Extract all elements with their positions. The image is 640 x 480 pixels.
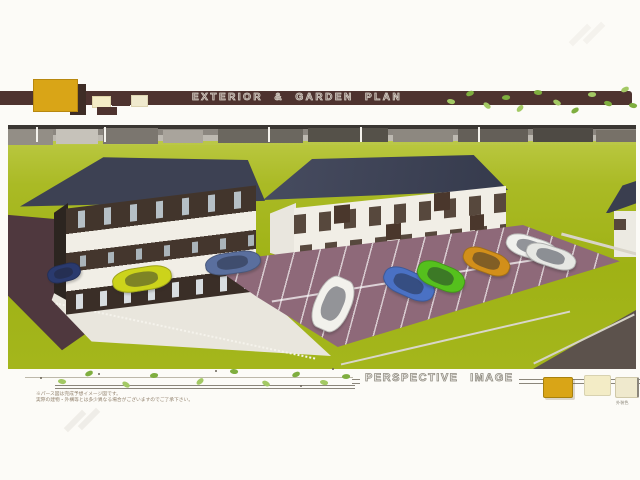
navy-hatchback-cabin [53, 266, 74, 281]
navy-hatchback [45, 260, 82, 286]
white-minivan-cabin [317, 283, 350, 324]
page-title: EXTERIOR & GARDEN PLAN [192, 91, 402, 105]
presentation-page: EXTERIOR & GARDEN PLAN [0, 0, 640, 480]
vine-leaf-icon [515, 104, 524, 113]
vine-dot-icon [40, 377, 42, 379]
vine-leaf-icon [628, 102, 637, 109]
gold-accent-square [33, 79, 78, 112]
white-sedan-2-cabin [535, 246, 566, 267]
watermark-mark [575, 20, 605, 54]
car-layer [8, 125, 636, 369]
steel-blue-sedan [204, 248, 263, 278]
footer-rule-double [55, 385, 355, 389]
pale-color-swatch [615, 377, 639, 398]
orange-coupe [460, 242, 514, 280]
white-minivan [305, 271, 361, 337]
gold-color-swatch [543, 377, 573, 398]
vine-dot-icon [332, 368, 334, 370]
pale-accent-square [131, 95, 148, 107]
brown-accent-square [97, 107, 117, 115]
brown-accent-square-2 [112, 95, 130, 106]
cream-color-swatch [584, 375, 611, 396]
vine-leaf-icon [570, 107, 579, 114]
steel-blue-sedan-cabin [216, 254, 249, 271]
vine-leaf-icon [84, 370, 93, 377]
vine-dot-icon [300, 385, 302, 387]
disclaimer-line-2: 実際の建物・外構等とは多少異なる場合がございますのでご了承下さい。 [36, 397, 193, 403]
swatch-caption: 外装色 [616, 400, 629, 406]
perspective-rendering [8, 125, 636, 369]
yellow-hatchback [110, 262, 173, 295]
vine-leaf-icon [342, 373, 351, 379]
green-hatchback-cabin [425, 264, 456, 288]
watermark-mark [70, 406, 100, 440]
vine-dot-icon [215, 370, 217, 372]
disclaimer-text: ※パース図は完成予想イメージ図です。 実際の建物・外構等とは多少異なる場合がござ… [36, 391, 193, 403]
orange-coupe-cabin [471, 250, 501, 272]
perspective-caption: PERSPECTIVE IMAGE [360, 372, 519, 384]
yellow-hatchback-cabin [124, 269, 159, 289]
vine-dot-icon [98, 373, 100, 375]
footer-rule-thin [25, 377, 353, 378]
